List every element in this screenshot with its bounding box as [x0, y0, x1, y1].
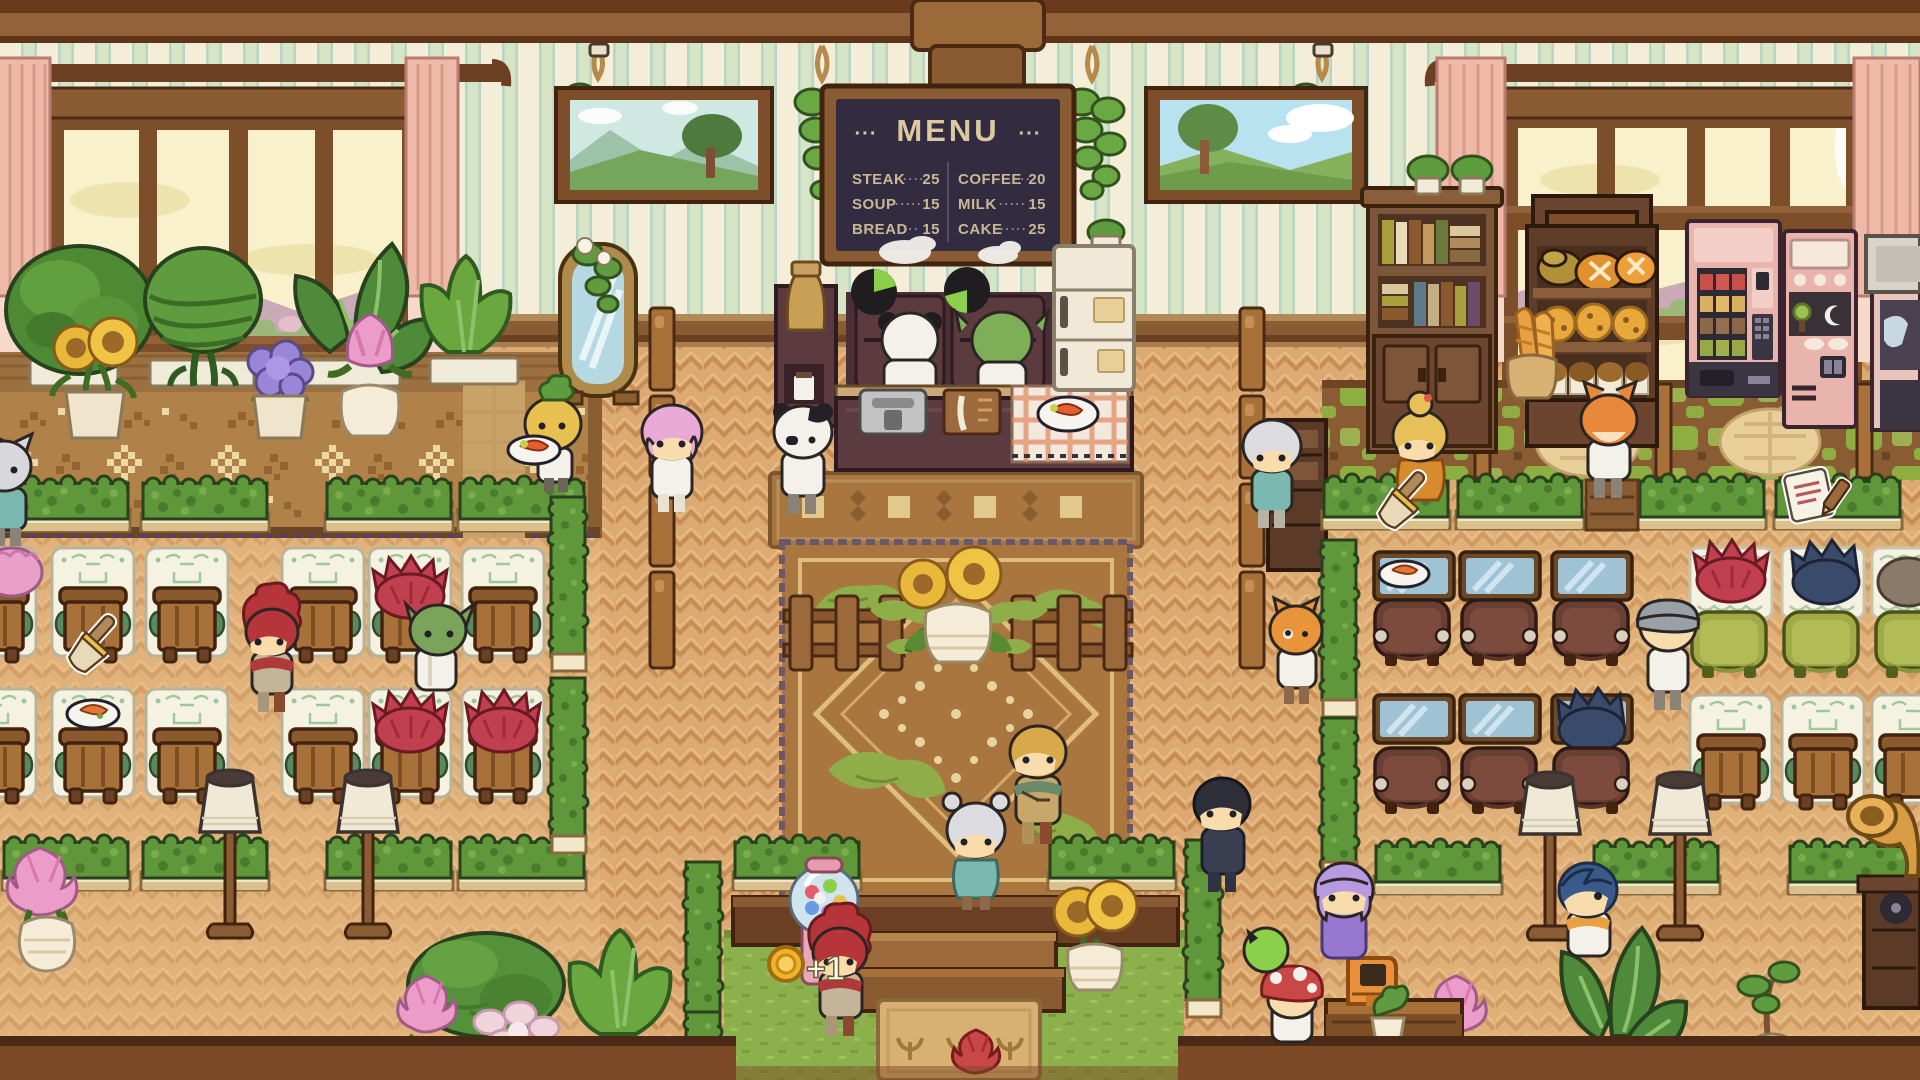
svg-text:CAKE: CAKE [958, 221, 1003, 238]
svg-text:15: 15 [1028, 196, 1046, 213]
svg-text:···: ··· [1015, 172, 1032, 186]
svg-text:15: 15 [922, 221, 940, 238]
svg-text:SOUP: SOUP [852, 196, 897, 213]
svg-text:···: ··· [1019, 123, 1042, 145]
svg-text:···: ··· [903, 222, 920, 236]
svg-text:MENU: MENU [896, 113, 999, 148]
svg-text:····: ···· [903, 172, 925, 186]
svg-text:BREAD: BREAD [852, 221, 908, 238]
svg-text:·····: ····· [895, 197, 922, 211]
svg-text:25: 25 [1028, 221, 1046, 238]
svg-text:···: ··· [855, 123, 878, 145]
svg-text:·····: ····· [1000, 222, 1027, 236]
svg-text:+1: +1 [806, 950, 845, 988]
svg-text:15: 15 [922, 196, 940, 213]
svg-text:·····: ····· [999, 197, 1026, 211]
svg-text:COFFEE: COFFEE [958, 171, 1022, 188]
svg-text:MILK: MILK [958, 196, 997, 213]
svg-text:STEAK: STEAK [852, 171, 905, 188]
